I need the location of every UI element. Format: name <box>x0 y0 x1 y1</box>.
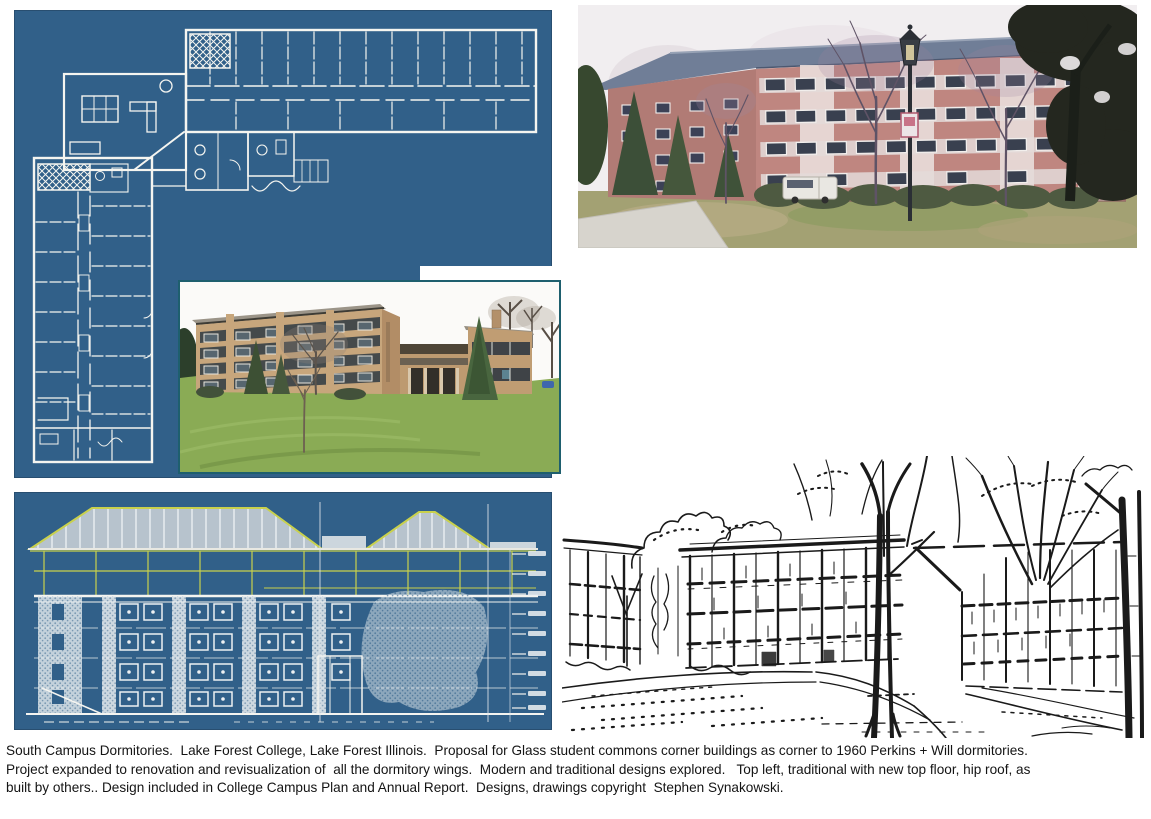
portfolio-page: South Campus Dormitories. Lake Forest Co… <box>0 0 1151 819</box>
elevation-windows <box>54 604 350 706</box>
photo-brick-dormitory <box>578 5 1137 248</box>
chimney <box>492 310 501 328</box>
plan-entry-link <box>186 132 328 191</box>
caption: South Campus Dormitories. Lake Forest Co… <box>6 742 1148 798</box>
flat-roof-link <box>322 536 366 549</box>
elevation-facade <box>34 590 538 714</box>
photo-tan-dormitory <box>178 280 561 474</box>
ink-sketch-figure <box>562 456 1151 738</box>
sketch-ground <box>562 574 1134 738</box>
elevation-drawing <box>14 492 552 730</box>
plan-lounge <box>64 74 186 170</box>
sketch-main-building <box>680 535 904 675</box>
caption-line-3: built by others.. Design included in Col… <box>6 779 1148 798</box>
tan-dormitory-scene <box>180 282 559 472</box>
sketch-bush <box>651 566 678 656</box>
yellow-guide-lines <box>30 551 536 596</box>
connector-wing <box>400 344 468 394</box>
caption-line-2: Project expanded to renovation and revis… <box>6 761 1148 780</box>
ink-sketch-drawing <box>562 456 1151 738</box>
sketch-right-building <box>912 540 1122 692</box>
plan-room-partitions-top <box>210 32 522 130</box>
plan-stair-hatch-top <box>190 34 230 68</box>
level-annotations <box>512 551 546 710</box>
end-wall <box>382 309 400 394</box>
sketch-left-wing <box>564 540 642 670</box>
caption-line-1: South Campus Dormitories. Lake Forest Co… <box>6 742 1148 761</box>
parked-car <box>542 381 554 388</box>
elevation-panel <box>14 492 552 730</box>
elevation-tree-blob <box>362 590 488 711</box>
hip-roof-right <box>366 506 490 552</box>
plan-vertical-wing <box>34 158 186 462</box>
plan-stair-hatch-left <box>38 164 90 190</box>
street-sign <box>901 113 918 137</box>
hip-roof-main <box>30 502 322 552</box>
brick-dormitory-scene <box>578 5 1137 248</box>
